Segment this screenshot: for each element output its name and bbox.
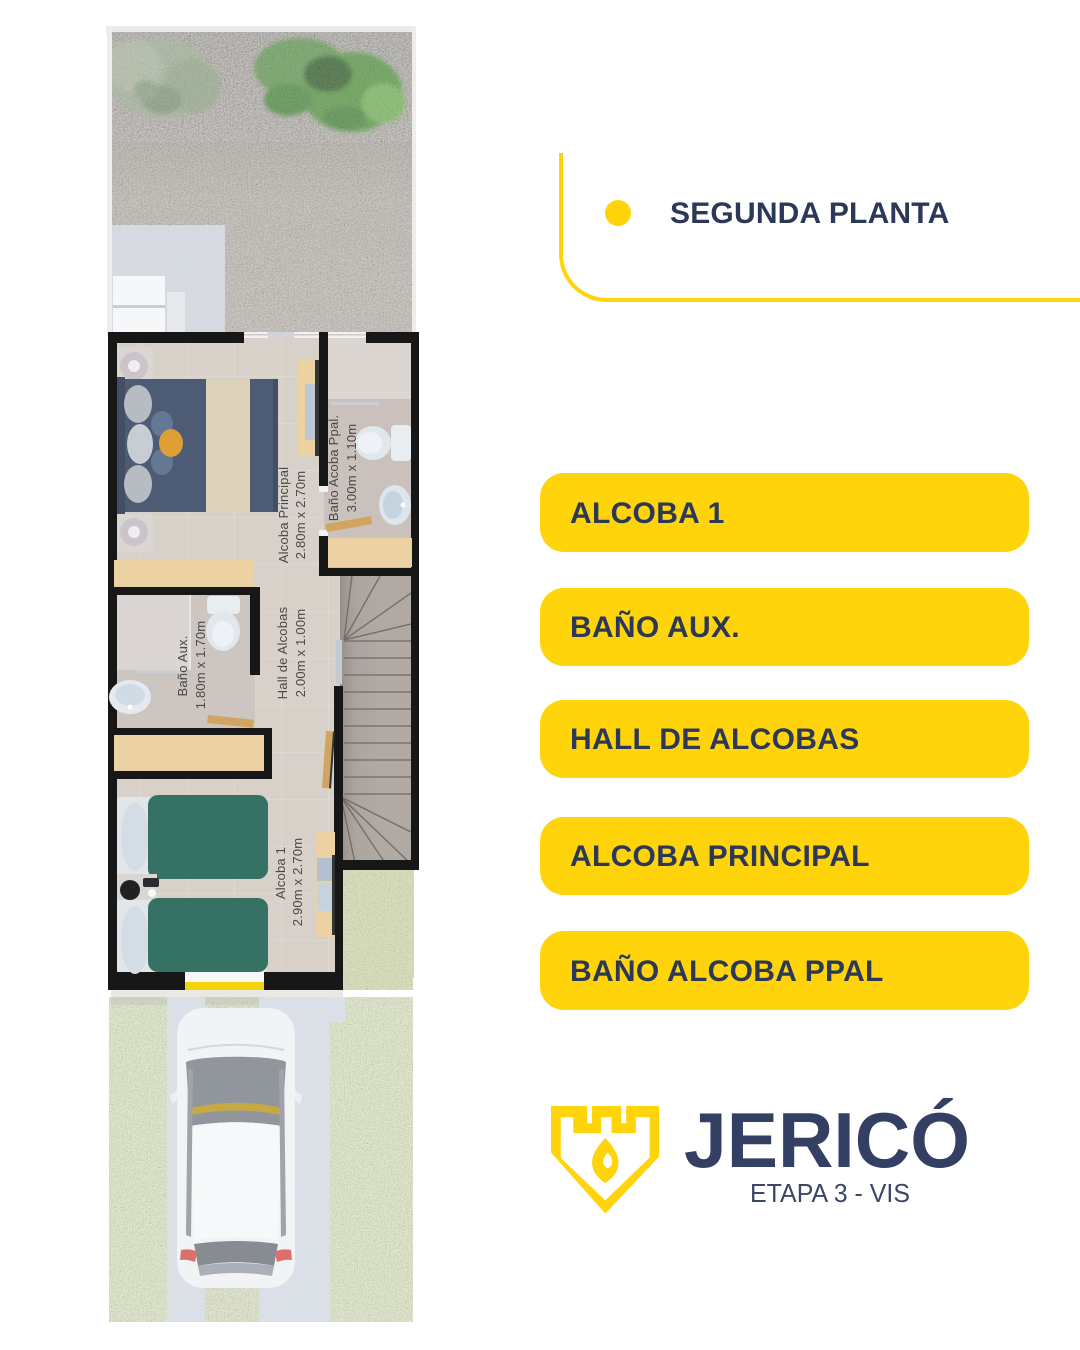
svg-text:ETAPA 3 - VIS: ETAPA 3 - VIS [750, 1178, 910, 1208]
svg-text:JERICÓ: JERICÓ [684, 1096, 970, 1184]
